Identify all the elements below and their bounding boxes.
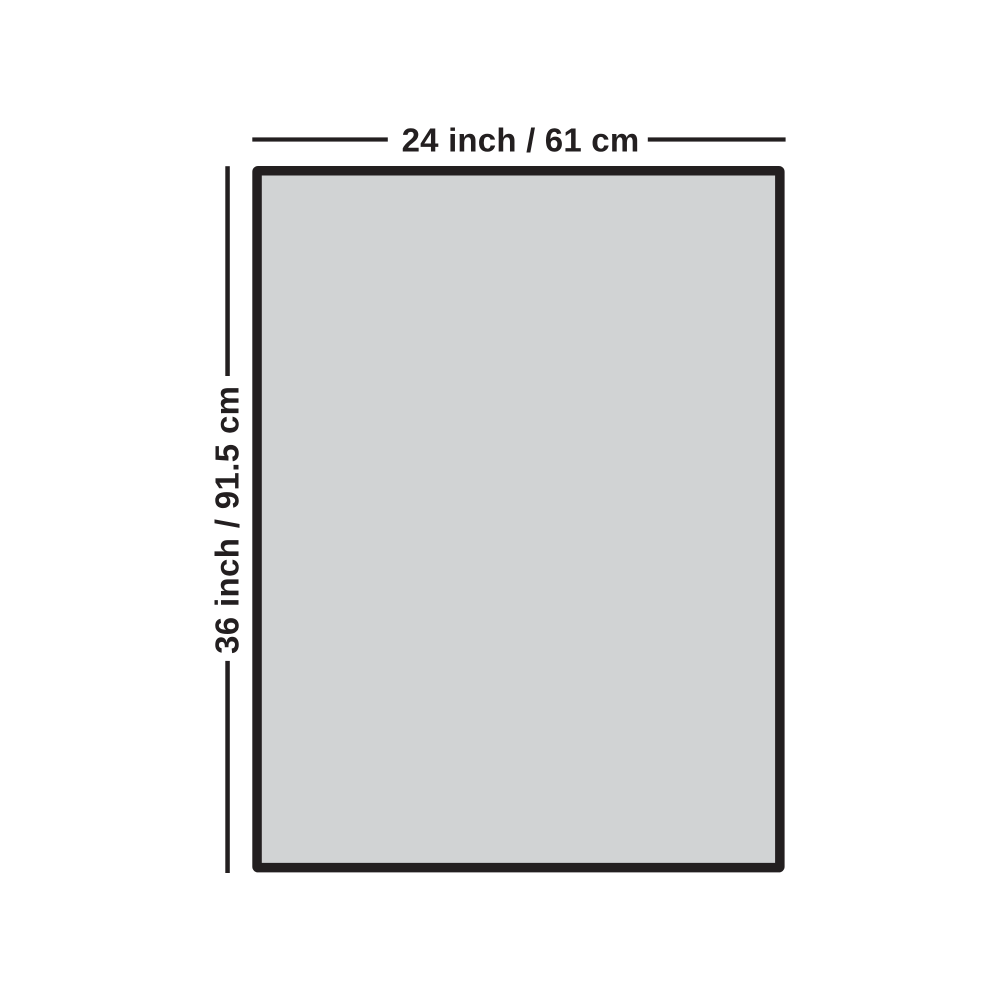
svg-text:24 inch / 61 cm: 24 inch / 61 cm xyxy=(402,121,640,158)
svg-text:36 inch / 91.5 cm: 36 inch / 91.5 cm xyxy=(209,386,246,654)
